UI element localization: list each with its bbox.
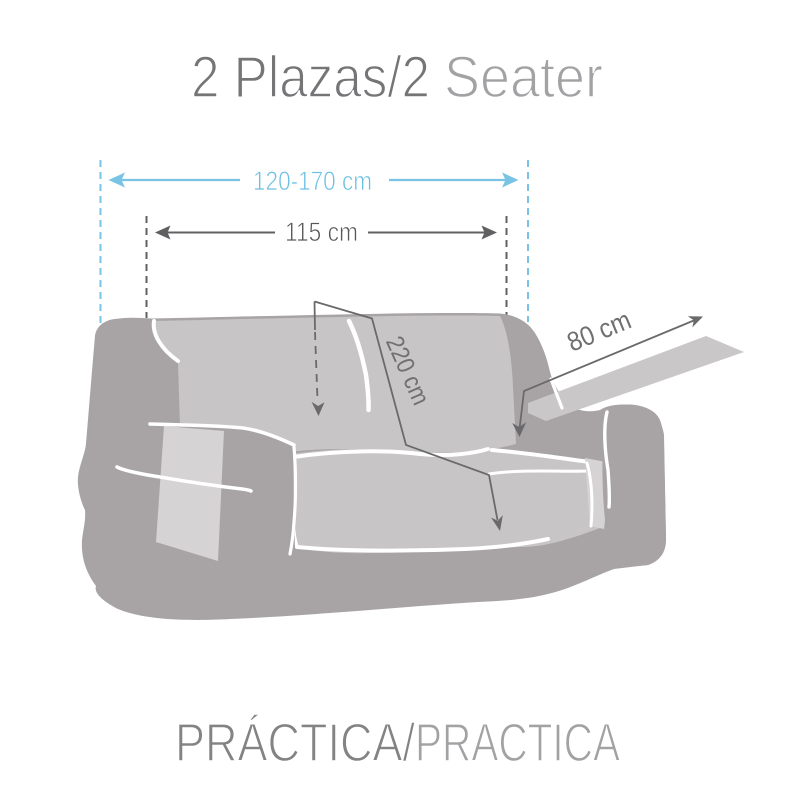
svg-text:PRÁCTICA/: PRÁCTICA/	[175, 713, 415, 773]
svg-text:2 Plazas/2: 2 Plazas/2	[191, 45, 430, 110]
svg-text:Seater: Seater	[444, 45, 603, 110]
svg-text:115 cm: 115 cm	[285, 217, 358, 247]
svg-text:120-170 cm: 120-170 cm	[253, 166, 372, 196]
svg-text:PRACTICA: PRACTICA	[415, 713, 620, 773]
